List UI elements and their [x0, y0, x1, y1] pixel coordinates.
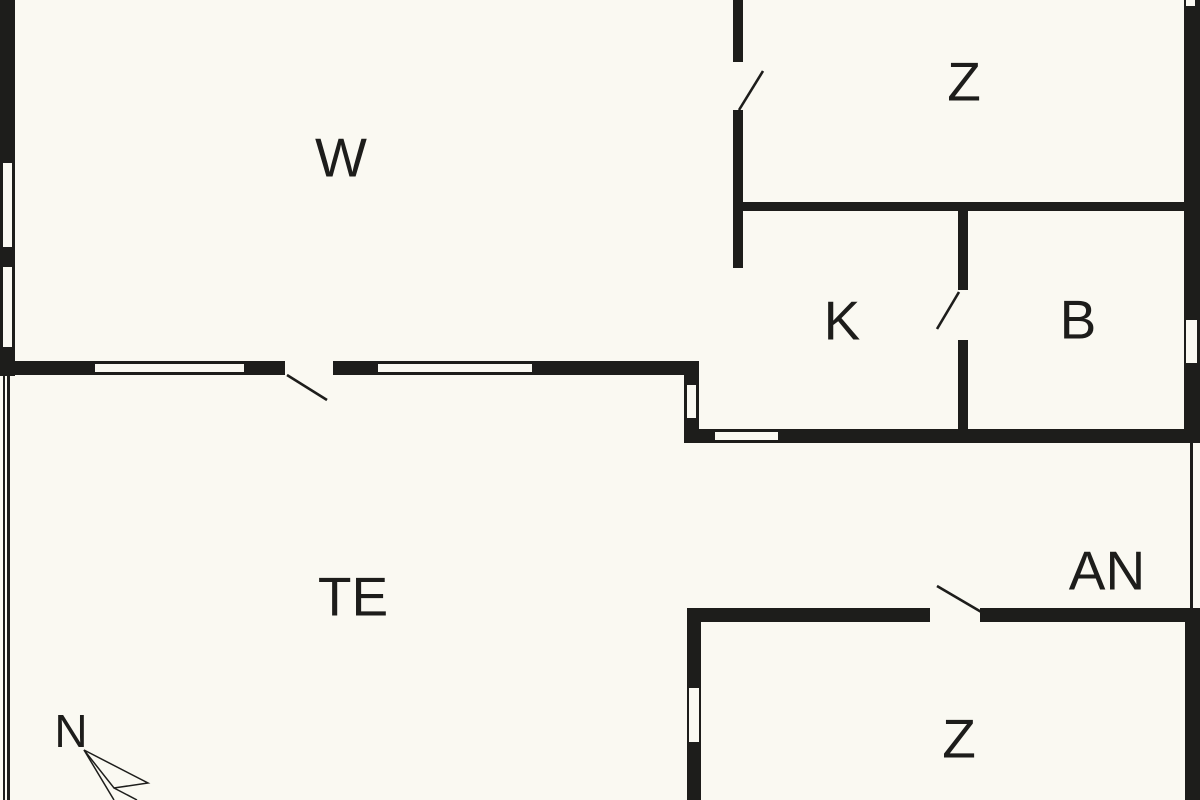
door-swing-line — [937, 586, 983, 613]
door-swing-line — [287, 375, 327, 400]
wall-segment — [1184, 0, 1200, 443]
window-opening — [715, 432, 778, 440]
wall-segment — [958, 340, 968, 429]
room-label-living: W — [315, 131, 367, 186]
room-label-bedroom-top: Z — [947, 55, 981, 110]
boundary-thin-line — [7, 376, 10, 800]
room-label-terrace: TE — [318, 570, 388, 625]
room-label-kitchen: K — [824, 294, 861, 349]
boundary-thin-line — [3, 376, 5, 800]
wall-segment — [687, 608, 930, 622]
floorplan-canvas — [0, 0, 1200, 800]
window-opening — [1186, 0, 1195, 6]
door-swing-line — [739, 71, 763, 110]
window-opening — [3, 163, 12, 247]
wall-segment — [733, 0, 743, 62]
north-arrow-icon — [84, 750, 148, 788]
wall-segment — [958, 211, 968, 290]
compass-north-label: N — [54, 708, 87, 754]
window-opening — [3, 267, 12, 347]
room-label-bedroom-bottom: Z — [942, 712, 976, 767]
wall-segment — [1185, 608, 1200, 800]
wall-segment — [980, 608, 1200, 622]
window-opening — [687, 385, 696, 418]
north-arrow-icon — [114, 788, 137, 800]
door-swing-line — [937, 292, 959, 329]
window-opening — [378, 364, 532, 372]
room-label-annex: AN — [1069, 544, 1145, 599]
window-opening — [689, 688, 699, 742]
floorplan: W Z K B TE AN Z N — [0, 0, 1200, 800]
room-label-bathroom: B — [1060, 293, 1097, 348]
wall-segment — [733, 110, 743, 268]
wall-segment — [733, 202, 1200, 211]
window-opening — [1186, 320, 1197, 363]
window-opening — [95, 364, 244, 372]
boundary-thin-line — [1190, 443, 1193, 608]
